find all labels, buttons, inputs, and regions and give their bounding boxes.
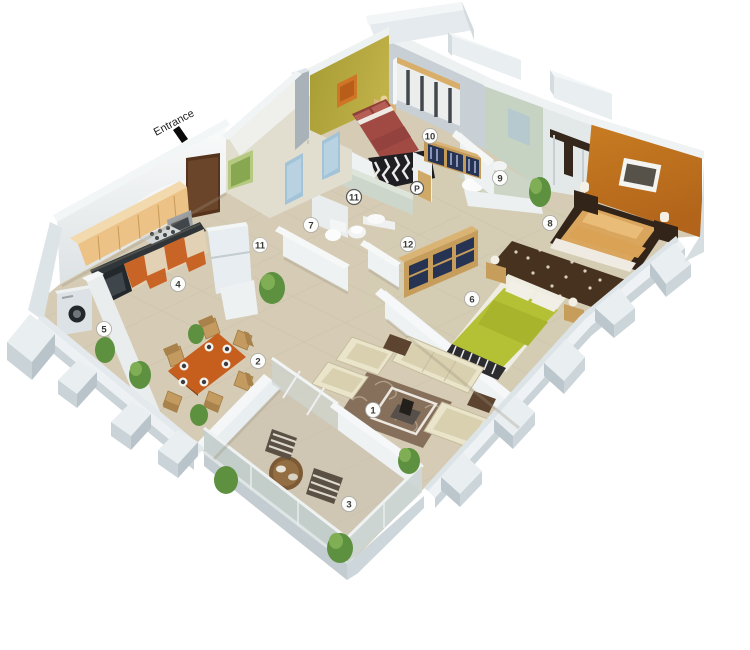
svg-text:10: 10 [425,132,436,143]
svg-text:6: 6 [469,295,474,306]
svg-text:3: 3 [346,500,351,511]
svg-text:7: 7 [308,221,313,232]
svg-text:5: 5 [101,325,107,336]
svg-text:12: 12 [403,240,414,251]
svg-text:8: 8 [547,219,552,230]
svg-text:11: 11 [255,241,266,252]
svg-text:Entrance: Entrance [152,107,197,138]
svg-text:1: 1 [370,406,376,417]
svg-text:11: 11 [349,193,360,204]
svg-text:9: 9 [497,174,502,185]
svg-text:4: 4 [175,280,181,291]
svg-text:P: P [414,184,420,194]
svg-text:2: 2 [255,357,260,368]
